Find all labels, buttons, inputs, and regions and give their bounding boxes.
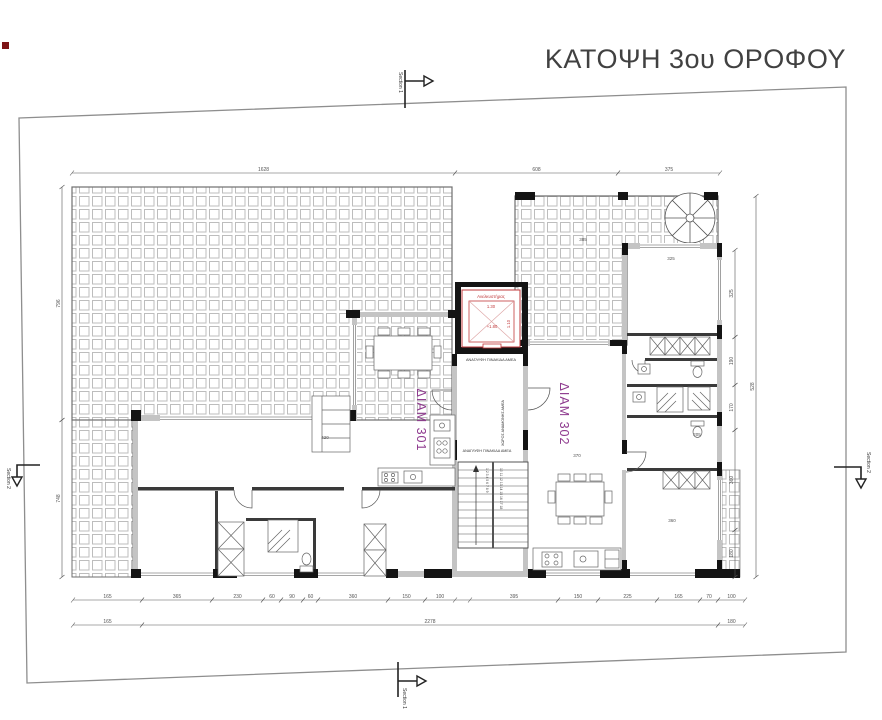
kitchen-302 xyxy=(533,548,621,570)
room-dimension-label: 385 xyxy=(579,237,587,242)
dimension-label: 375 xyxy=(665,167,674,173)
sofa-301 xyxy=(312,396,350,452)
dimension-label: 528 xyxy=(750,382,756,391)
toilet-2 xyxy=(691,361,704,378)
shower-2 xyxy=(657,387,683,412)
dimension-label: 165 xyxy=(674,594,683,600)
room-dimension-label: 325 xyxy=(667,256,675,261)
dimension-label: 748 xyxy=(56,494,62,503)
section-marker-label: Section 1 xyxy=(397,72,403,93)
dimension-label: 170 xyxy=(729,403,735,412)
dimension-label: 90 xyxy=(289,594,295,600)
section-marker-label: Section 2 xyxy=(5,468,11,489)
dimension-label: 100 xyxy=(727,594,736,600)
dimension-label: 150 xyxy=(574,594,583,600)
wardrobe-d xyxy=(663,471,710,489)
staircase: 1 2 3 4 5 6 7 8 9 10 11 12 13 14 15 16 1… xyxy=(458,462,528,548)
basin-1 xyxy=(638,364,650,374)
dimension-label: 360 xyxy=(349,594,358,600)
dimension-label: 165 xyxy=(103,619,112,625)
dimension-label: 60 xyxy=(308,594,314,600)
elevator-width-dim: 1.30 xyxy=(487,304,496,309)
dimension-label: 180 xyxy=(729,549,735,558)
dimension-label: 60 xyxy=(269,594,275,600)
elevator-label: Ανελκυστήρας xyxy=(477,294,505,299)
toilet-1 xyxy=(300,553,313,572)
section-marker-label: Section 2 xyxy=(865,452,871,473)
wardrobe-a xyxy=(218,522,244,576)
apartment-302-label: ΔΙΑΜ 302 xyxy=(557,383,571,446)
wardrobe-c xyxy=(650,337,710,355)
room-dimension-label: 360 xyxy=(668,518,676,523)
dimension-label: 230 xyxy=(233,594,242,600)
dimension-label: 360 xyxy=(729,476,735,485)
dimension-label: 2278 xyxy=(424,619,435,625)
braille-sign-top: ΑΝΑΓΛΥΦΗ ΠΙΝΑΚΙΔΑ ΑΜΕΑ xyxy=(466,358,517,362)
wheelchair-waiting-label: ΧΩΡΟΣ ΑΝΑΜΟΝΗΣ ΑΜΕΑ xyxy=(501,399,505,446)
dimension-label: 100 xyxy=(436,594,445,600)
section-marker-left: Section 2 xyxy=(5,465,40,489)
dimension-label: 1628 xyxy=(258,167,269,173)
room-dimension-label: 370 xyxy=(573,453,581,458)
dimension-label: 165 xyxy=(103,594,112,600)
shower-1 xyxy=(268,520,298,552)
dimension-label: 70 xyxy=(706,594,712,600)
dimension-label: 365 xyxy=(173,594,182,600)
terrace-west-strip xyxy=(72,420,133,577)
dimension-label: 608 xyxy=(532,167,541,173)
elevator: Ανελκυστήρας 1.30 1.10 +1.80 xyxy=(455,282,528,354)
room-dimension-label: 205 xyxy=(693,432,701,437)
shower-3 xyxy=(688,387,710,410)
dimension-label: 150 xyxy=(402,594,411,600)
floor-plan-drawing: ΚΑΤΟΨΗ 3ου ΟΡΟΦΟΥ Section 1 Section 1 Se… xyxy=(0,0,882,720)
elevator-level: +1.80 xyxy=(487,324,498,329)
dimension-label: 395 xyxy=(510,594,519,600)
section-marker-right: Section 2 xyxy=(834,452,871,488)
dimension-label: 796 xyxy=(56,299,62,308)
basin-2 xyxy=(633,392,645,402)
room-dimension-label: 420 xyxy=(321,435,329,440)
page-title: ΚΑΤΟΨΗ 3ου ΟΡΟΦΟΥ xyxy=(545,44,846,74)
wardrobe-b xyxy=(364,524,386,576)
dining-table-302 xyxy=(548,474,612,524)
dimension-label: 225 xyxy=(623,594,632,600)
apartment-301-label: ΔΙΑΜ 301 xyxy=(414,389,428,452)
terrace-east-strip xyxy=(722,470,740,577)
corner-mark xyxy=(2,42,9,49)
terrace-west xyxy=(72,187,452,420)
braille-sign-bottom: ΑΝΑΓΛΥΦΗ ΠΙΝΑΚΙΔΑ ΑΜΕΑ xyxy=(463,449,512,453)
floor-plan-sheet: ΚΑΤΟΨΗ 3ου ΟΡΟΦΟΥ Section 1 Section 1 Se… xyxy=(0,0,882,720)
stair-numbers-down: 10 11 12 13 14 15 16 17 18 xyxy=(499,468,503,509)
spiral-staircase xyxy=(665,193,715,243)
elevator-depth-dim: 1.10 xyxy=(506,319,511,328)
section-marker-label: Section 1 xyxy=(401,688,407,709)
dimension-label: 180 xyxy=(727,619,736,625)
dimension-label: 190 xyxy=(729,357,735,366)
dimension-label: 325 xyxy=(729,289,735,298)
stair-numbers-up: 1 2 3 4 5 6 7 8 9 xyxy=(485,468,489,493)
